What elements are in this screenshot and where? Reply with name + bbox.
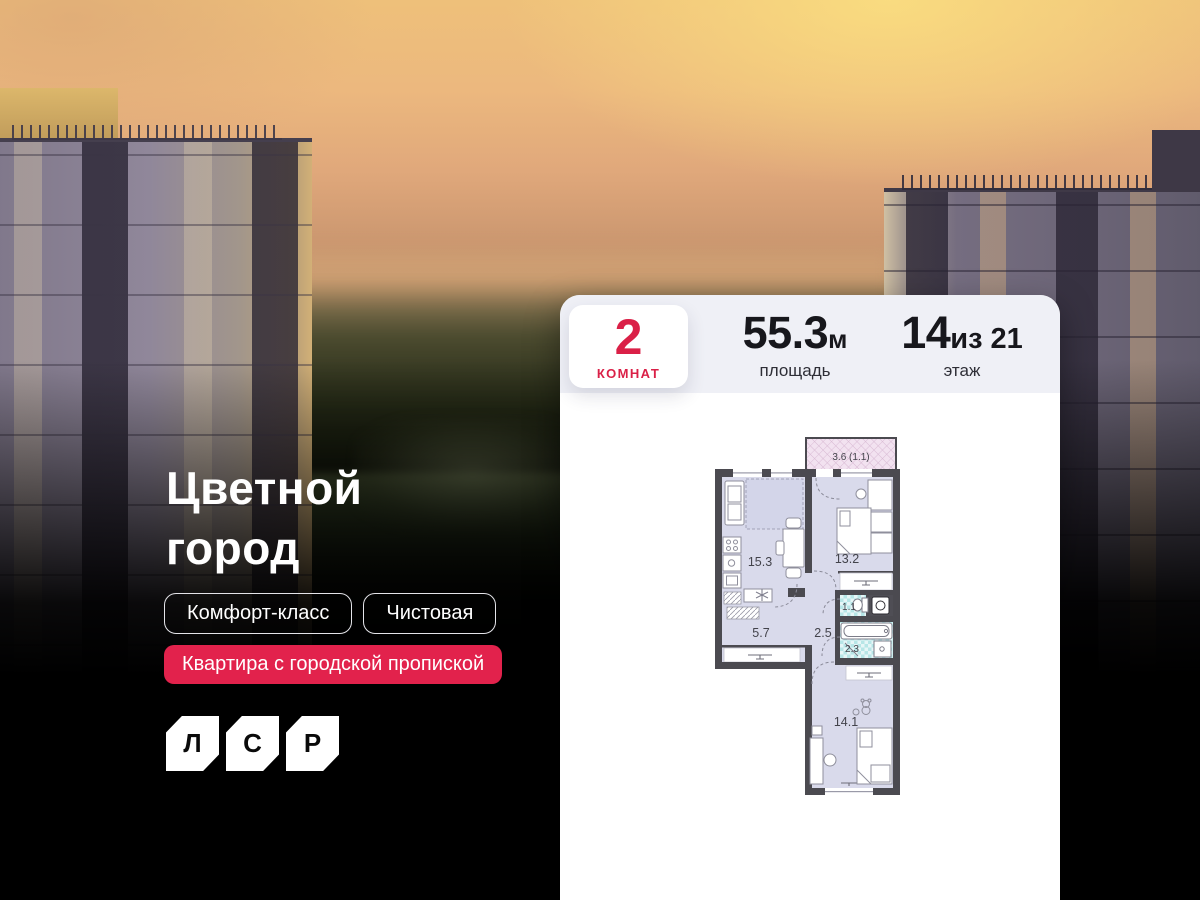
balcony-area-label: 3.6 (1.1) [832,452,869,463]
area-label: площадь [710,361,880,381]
project-title: Цветной город [166,458,362,578]
bedroom2-area-label: 14.1 [834,715,858,729]
lsr-letter-r: Р [304,728,321,759]
lsr-letter-s: С [243,728,262,759]
lsr-logo-tile-r: Р [286,716,339,771]
washing-machine-icon [872,597,889,614]
bath-area-label: 2.3 [845,644,859,655]
rooms-count: 2 [615,312,643,362]
tag-city-registration: Квартира с городской пропиской [164,645,502,684]
project-title-line1: Цветной [166,458,362,518]
floor-of-total: из 21 [950,323,1023,355]
banner[interactable]: Цветной город Комфорт-класс Чистовая Ква… [0,0,1200,900]
tag-row: Комфорт-класс Чистовая [164,593,496,634]
area-value: 55.3 [743,307,829,358]
plan-balcony: 3.6 (1.1) [806,438,896,471]
rooms-chip: 2 КОМНАТ [569,305,688,388]
floor-value: 14 [901,307,950,358]
area-stat: 55.3м площадь [710,308,880,381]
lsr-logo: Л С Р [166,716,339,771]
floor-plan-svg: 3.6 (1.1) [688,430,918,802]
hall-area-label: 5.7 [752,626,769,640]
bathtub-icon [841,623,892,639]
bedroom-area-label: 13.2 [835,552,859,566]
wc-area-label: 1.1 [842,602,856,613]
floor-plan: 3.6 (1.1) [688,430,918,802]
corridor-area-label: 2.5 [814,626,831,640]
floor-stat: 14из 21 этаж [882,308,1042,381]
apartment-card-header: 2 КОМНАТ 55.3м площадь 14из 21 этаж [560,295,1060,393]
rooms-label: КОМНАТ [597,366,660,381]
lsr-logo-tile-l: Л [166,716,219,771]
project-title-line2: город [166,518,362,578]
apartment-card[interactable]: 2 КОМНАТ 55.3м площадь 14из 21 этаж [560,295,1060,900]
floor-label: этаж [882,361,1042,381]
tag-finish: Чистовая [363,593,496,634]
lsr-letter-l: Л [183,728,201,759]
living-area-label: 15.3 [748,555,772,569]
lsr-logo-tile-s: С [226,716,279,771]
area-unit: м [828,324,847,354]
tag-comfort-class: Комфорт-класс [164,593,352,634]
